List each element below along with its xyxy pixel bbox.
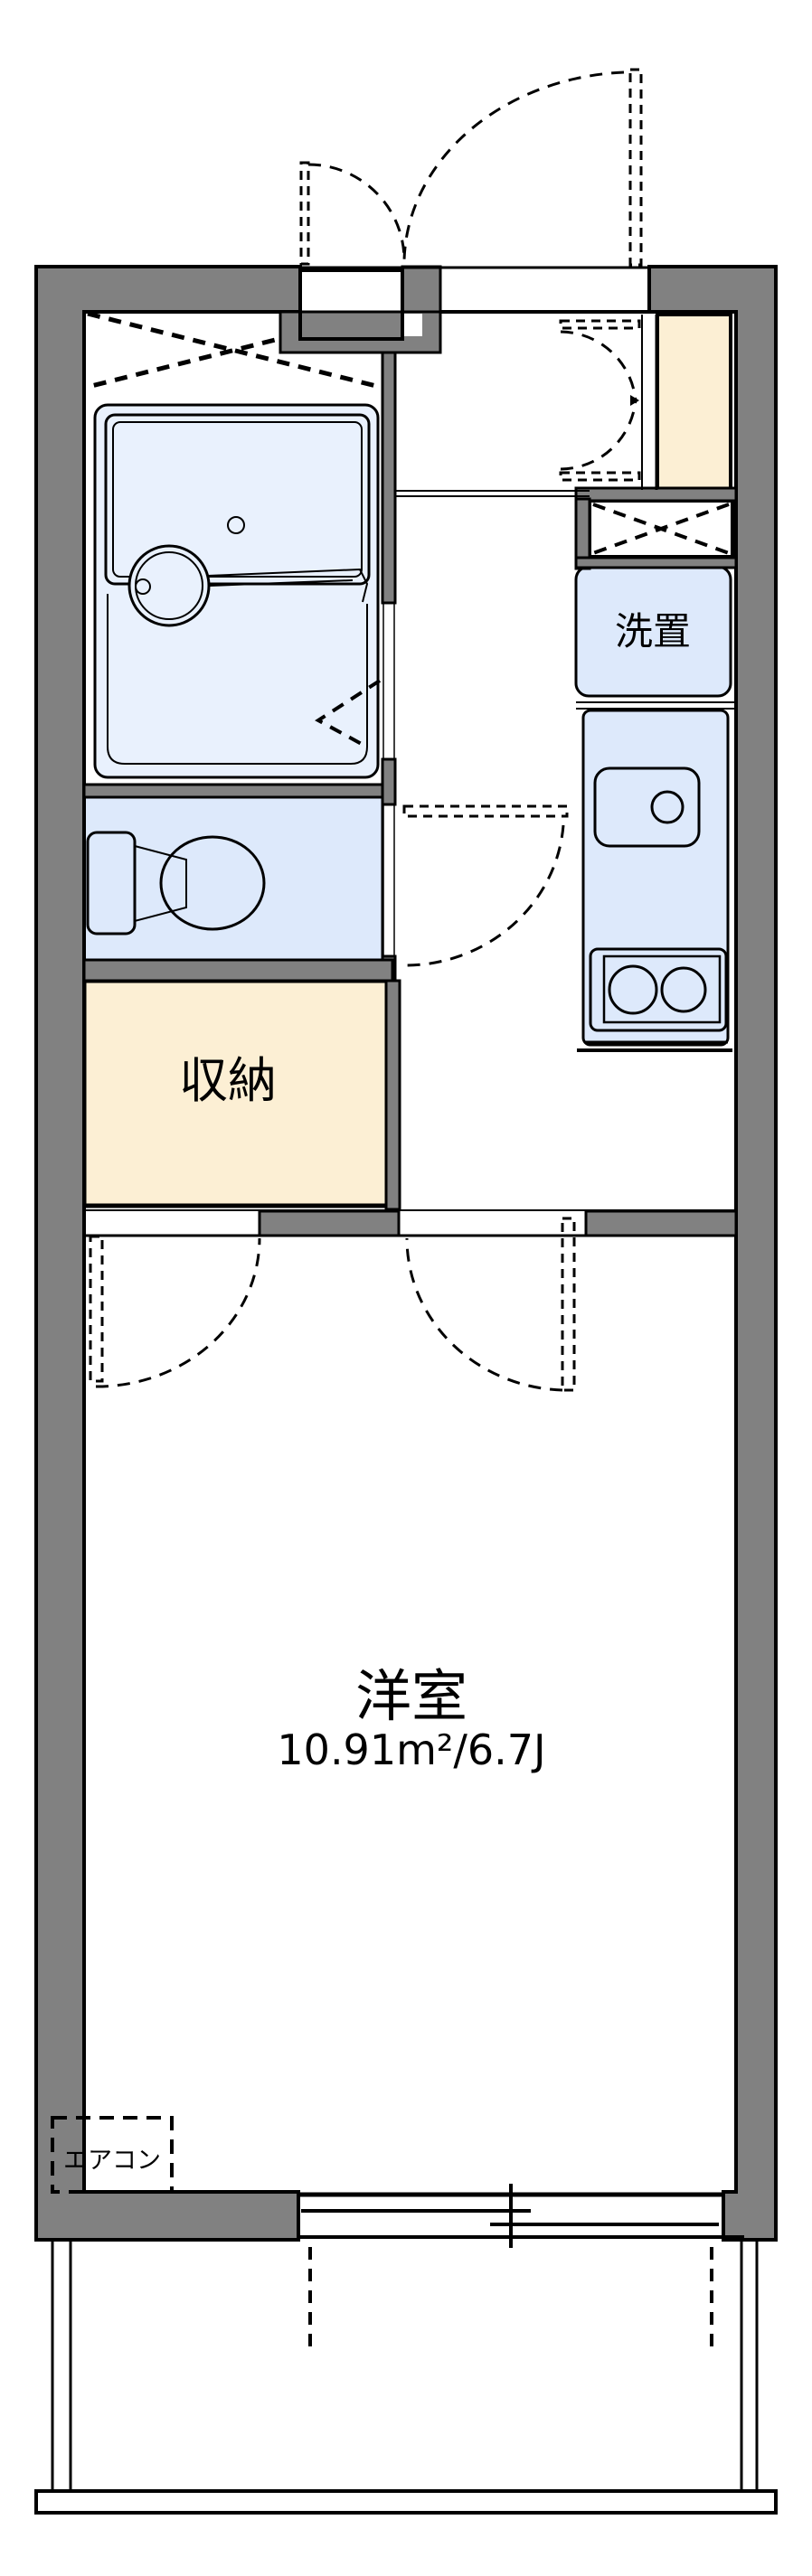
label-western-room-area: 10.91m²/6.7J (277, 1725, 545, 1774)
balcony (36, 2240, 776, 2513)
label-air-conditioner: エアコン (63, 2147, 161, 2175)
balcony-rail-left (52, 2240, 71, 2491)
entrance (300, 70, 649, 339)
wall-bath-hall (382, 353, 395, 603)
floor-plan: 洗置 収納 洋室 10.91m²/6.7J エアコン (0, 0, 812, 2576)
shoe-cabinet (657, 315, 731, 490)
room-door-leaf-left (90, 1236, 102, 1381)
room-door-swing-right (407, 1238, 562, 1390)
cabinet-door-leaf (561, 473, 639, 480)
wall-room-divider (586, 1211, 736, 1236)
wall-room-divider (260, 1211, 399, 1236)
meter-box-door-swing (308, 165, 404, 259)
sink-faucet (652, 792, 683, 823)
wall-ps-top (576, 488, 736, 501)
burner (662, 968, 705, 1011)
room-door-leaf-right (562, 1218, 574, 1390)
cabinet-door-leaf (561, 321, 639, 328)
entry-notch (404, 314, 422, 336)
unit-bath (88, 314, 380, 777)
room-doors (90, 1218, 574, 1390)
washbasin (129, 546, 209, 625)
wall-storage-hall (386, 981, 400, 1209)
meter-box-door-leaf (301, 163, 308, 264)
wall-toilet-storage (84, 960, 392, 981)
cabinet-door-swing (561, 399, 636, 469)
label-western-room: 洋室 (355, 1663, 467, 1729)
wall-bath-toilet (84, 785, 395, 797)
entrance-door-leaf (630, 70, 641, 265)
shoe-cabinet-doors (561, 315, 656, 490)
hall (383, 491, 590, 965)
wall-entry-column (402, 267, 440, 312)
toilet-room (84, 797, 382, 960)
floor-plan-canvas: 洗置 収納 洋室 10.91m²/6.7J エアコン (0, 0, 812, 2576)
cabinet-door-swing (561, 332, 636, 402)
hall-boundary-line (395, 491, 590, 496)
entrance-door-swing (404, 72, 624, 260)
wall-ps-bottom (576, 558, 736, 568)
room-door-swing-left (96, 1238, 260, 1387)
label-washer-place: 洗置 (615, 609, 691, 653)
wall-bath-hall (382, 759, 395, 804)
label-storage: 収納 (179, 1052, 277, 1109)
sliding-window (298, 2184, 744, 2248)
balcony-rail-bottom (36, 2491, 776, 2513)
counter-top-edge (576, 702, 734, 709)
burner (609, 966, 656, 1013)
swing-arrowhead (630, 395, 639, 406)
balcony-rail-right (741, 2240, 757, 2491)
toilet-door-swing (400, 825, 563, 965)
toilet-door-jamb (383, 804, 394, 956)
bath-door-jamb (383, 603, 394, 759)
ps-duct-x (593, 504, 729, 553)
kitchen (576, 501, 734, 1050)
toilet-door-leaf (404, 806, 567, 816)
